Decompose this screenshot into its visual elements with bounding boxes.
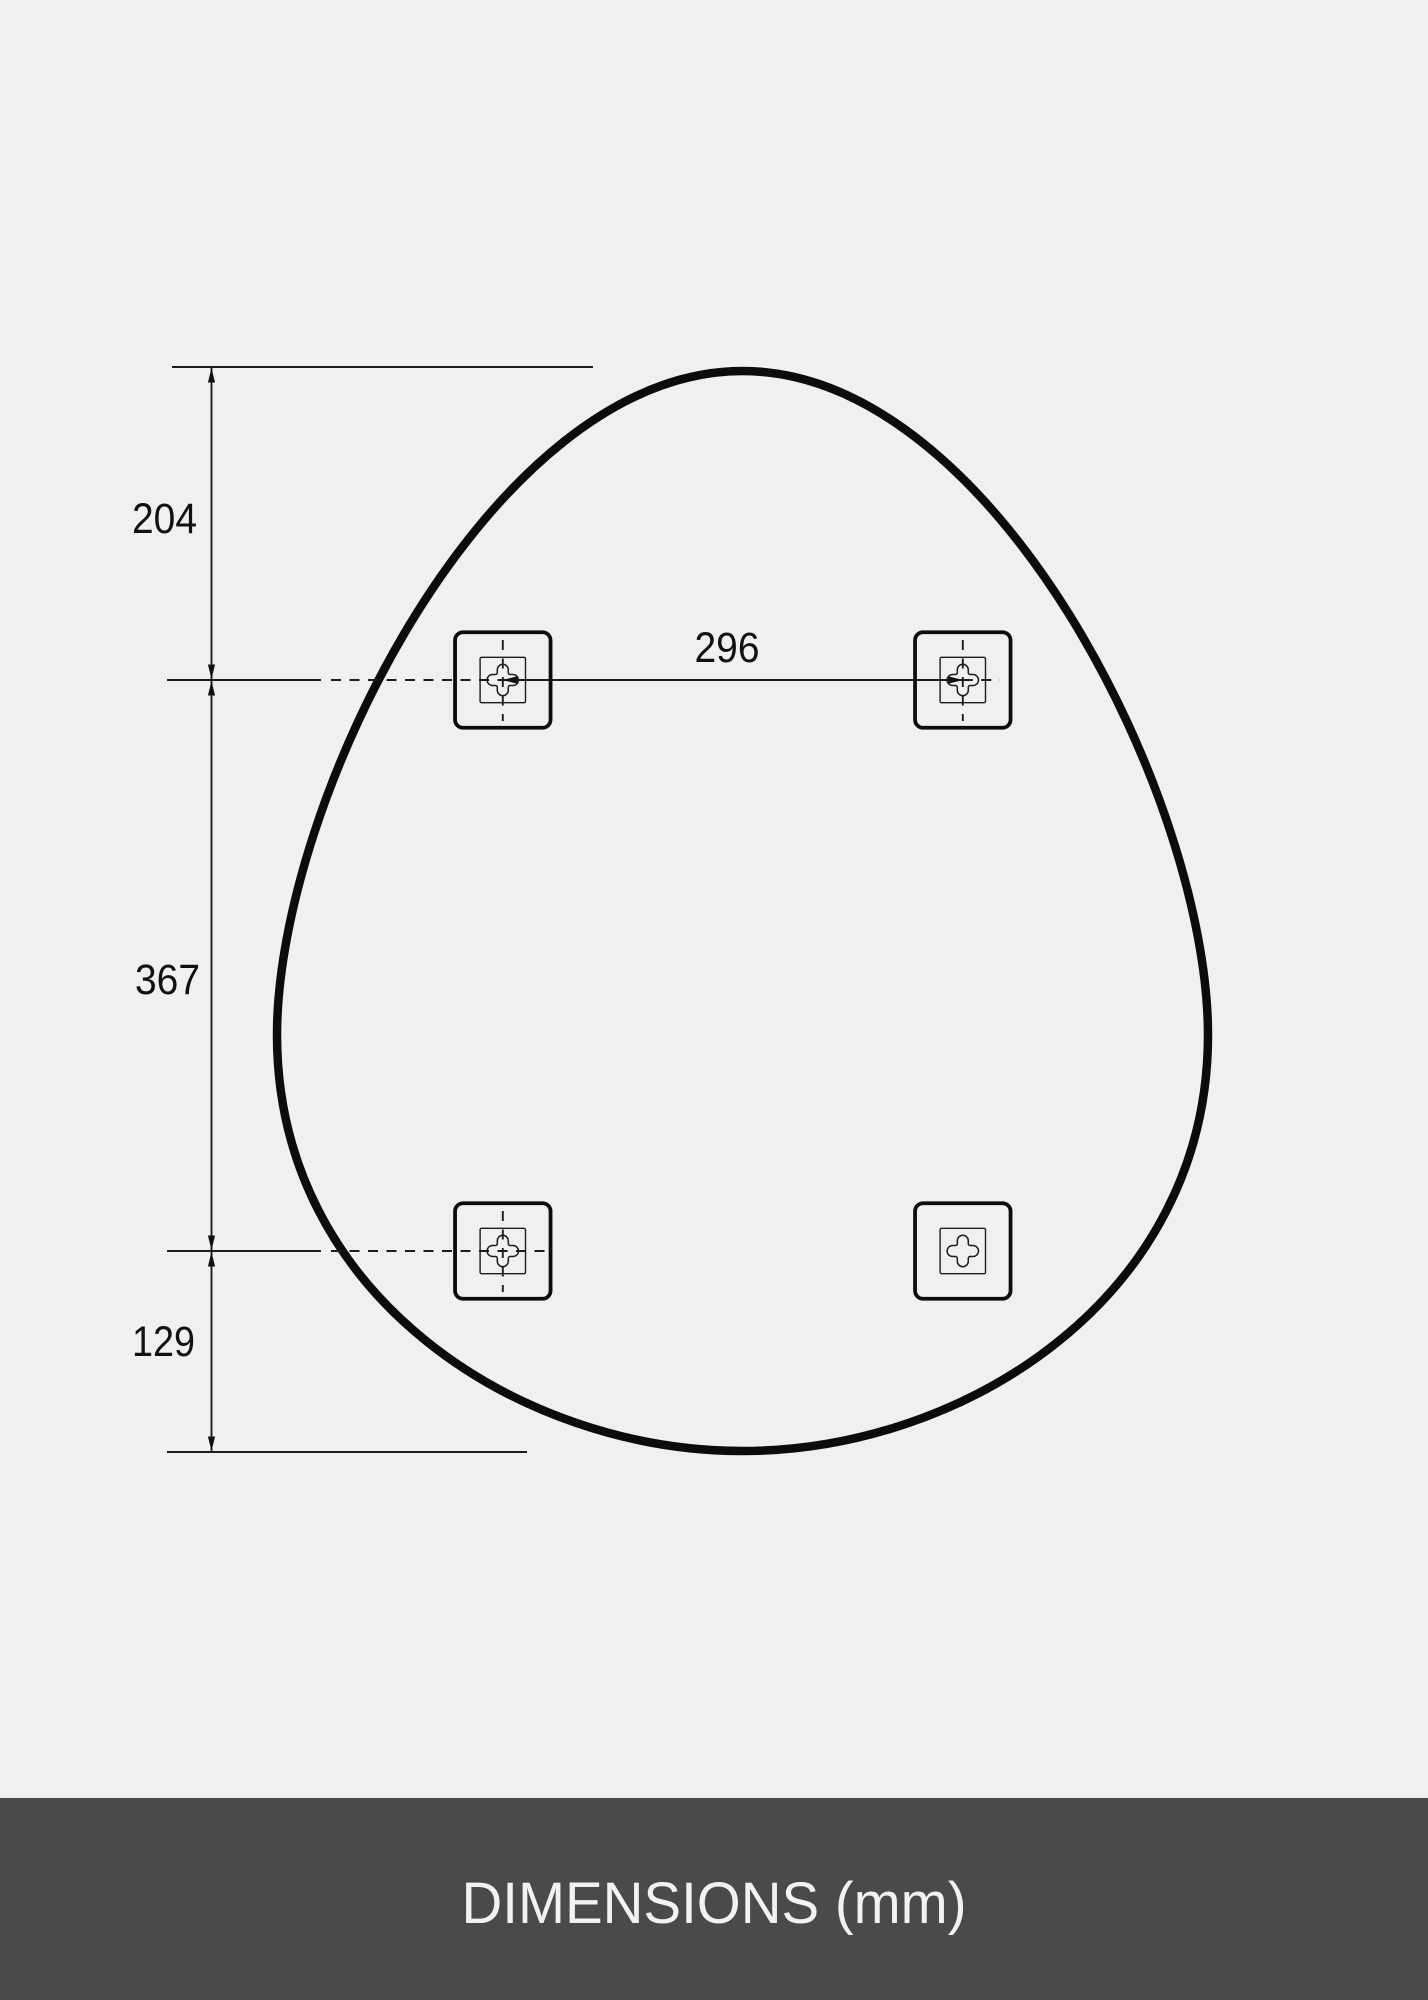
svg-text:296: 296 xyxy=(695,624,760,672)
svg-text:367: 367 xyxy=(135,956,200,1004)
svg-text:DIMENSIONS (mm): DIMENSIONS (mm) xyxy=(462,1871,967,1936)
svg-text:204: 204 xyxy=(132,495,197,543)
svg-text:129: 129 xyxy=(132,1318,195,1366)
